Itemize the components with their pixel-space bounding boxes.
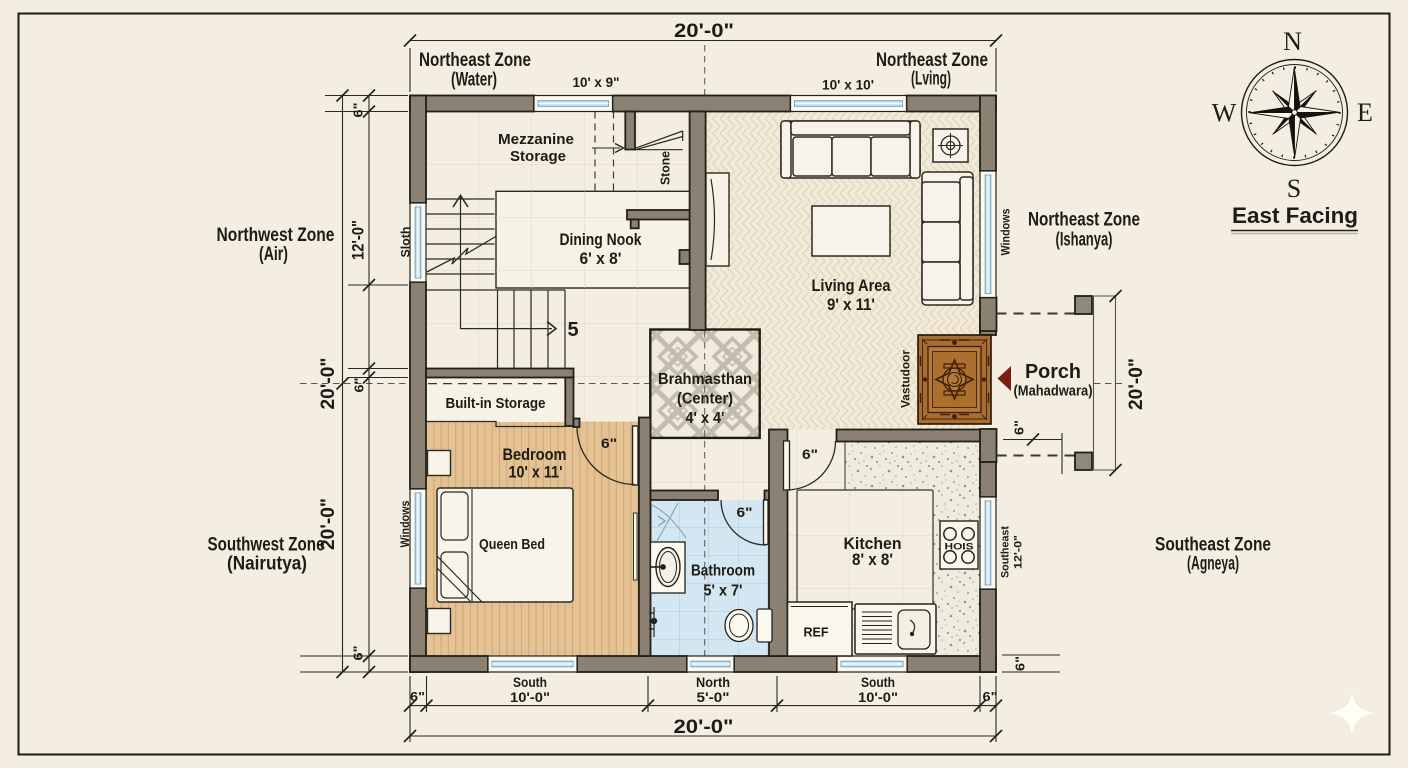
svg-text:HOIS: HOIS <box>945 542 974 553</box>
svg-text:20'-0": 20'-0" <box>318 358 339 410</box>
svg-text:8' x 8': 8' x 8' <box>852 550 893 569</box>
svg-text:6": 6" <box>410 689 425 704</box>
svg-text:Brahmasthan: Brahmasthan <box>658 371 752 388</box>
svg-text:South: South <box>513 674 547 690</box>
svg-text:Sloth: Sloth <box>399 227 413 258</box>
svg-text:Southeast Zone: Southeast Zone <box>1155 535 1271 556</box>
svg-text:(Center): (Center) <box>677 391 733 408</box>
svg-text:10'-0": 10'-0" <box>510 689 550 705</box>
svg-text:Northeast Zone: Northeast Zone <box>1028 210 1140 231</box>
svg-text:Queen Bed: Queen Bed <box>479 536 545 553</box>
svg-text:Bathroom: Bathroom <box>691 563 755 580</box>
svg-text:(Ishanya): (Ishanya) <box>1056 230 1113 251</box>
svg-text:Porch: Porch <box>1025 361 1081 383</box>
svg-text:REF: REF <box>804 625 829 640</box>
svg-text:6": 6" <box>352 378 367 393</box>
svg-text:5' x 7': 5' x 7' <box>704 583 743 600</box>
svg-text:9' x 11': 9' x 11' <box>827 295 875 314</box>
svg-text:6": 6" <box>1012 420 1027 435</box>
svg-text:(Air): (Air) <box>259 244 288 265</box>
svg-text:South: South <box>861 674 895 690</box>
svg-text:20'-0": 20'-0" <box>674 21 734 42</box>
svg-text:Stone: Stone <box>658 151 673 185</box>
svg-text:Windows: Windows <box>999 208 1013 255</box>
svg-text:4' x 4': 4' x 4' <box>686 410 725 427</box>
svg-text:6": 6" <box>351 103 366 118</box>
svg-text:Northwest Zone: Northwest Zone <box>217 225 335 246</box>
svg-text:20'-0": 20'-0" <box>1126 358 1147 410</box>
svg-text:Living Area: Living Area <box>812 276 891 295</box>
svg-text:6": 6" <box>351 646 366 661</box>
svg-text:(Lving): (Lving) <box>911 69 951 90</box>
svg-text:(Agneya): (Agneya) <box>1187 554 1239 575</box>
svg-text:10' x 9": 10' x 9" <box>573 74 620 90</box>
svg-text:E: E <box>1357 98 1373 127</box>
svg-text:6": 6" <box>983 689 998 704</box>
svg-text:6' x 8': 6' x 8' <box>580 249 622 268</box>
svg-text:6": 6" <box>1013 656 1028 671</box>
svg-text:5: 5 <box>567 319 578 341</box>
svg-text:12'-0": 12'-0" <box>349 220 368 260</box>
svg-text:Windows: Windows <box>398 500 412 547</box>
svg-text:(Mahadwara): (Mahadwara) <box>1014 383 1093 400</box>
svg-text:6": 6" <box>737 504 753 520</box>
svg-text:N: N <box>1283 27 1302 56</box>
svg-text:Northeast Zone: Northeast Zone <box>419 50 531 71</box>
svg-text:North: North <box>696 674 730 690</box>
svg-text:Storage: Storage <box>510 148 566 165</box>
svg-text:5'-0": 5'-0" <box>697 689 730 705</box>
svg-text:10'-0": 10'-0" <box>858 689 898 705</box>
svg-text:6": 6" <box>802 446 818 462</box>
svg-text:(Nairutya): (Nairutya) <box>227 554 307 575</box>
svg-text:W: W <box>1212 99 1237 128</box>
svg-text:S: S <box>1287 174 1301 203</box>
svg-text:10' x 11': 10' x 11' <box>509 463 563 482</box>
svg-text:10' x 10': 10' x 10' <box>822 77 874 93</box>
svg-text:Vastudoor: Vastudoor <box>901 349 913 408</box>
svg-text:(Water): (Water) <box>451 70 497 91</box>
svg-text:Built-in Storage: Built-in Storage <box>446 395 546 412</box>
svg-text:Mezzanine: Mezzanine <box>498 131 574 148</box>
svg-text:Bedroom: Bedroom <box>503 445 567 464</box>
svg-text:Southwest Zone: Southwest Zone <box>208 535 325 556</box>
svg-text:20'-0": 20'-0" <box>674 717 734 738</box>
svg-text:12'-0": 12'-0" <box>1013 535 1025 569</box>
svg-text:East Facing: East Facing <box>1232 203 1358 228</box>
svg-text:Dining Nook: Dining Nook <box>560 230 642 249</box>
svg-text:6": 6" <box>601 435 617 451</box>
svg-text:Southeast: Southeast <box>1000 526 1012 578</box>
